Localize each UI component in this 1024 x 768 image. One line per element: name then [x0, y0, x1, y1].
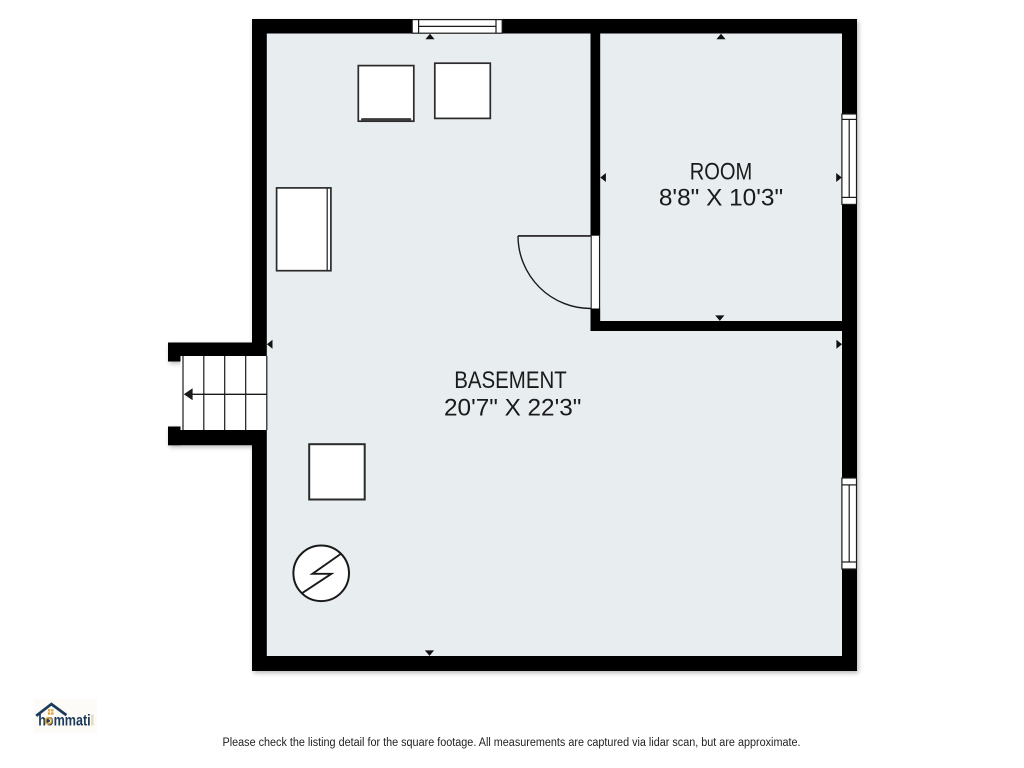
svg-text:Please check the listing detai: Please check the listing detail for the …: [223, 737, 801, 749]
svg-text:8'8" X 10'3": 8'8" X 10'3": [659, 185, 783, 212]
svg-text:20'7" X 22'3": 20'7" X 22'3": [444, 395, 581, 422]
svg-text:ROOM: ROOM: [690, 159, 753, 186]
svg-text:BASEMENT: BASEMENT: [454, 367, 567, 394]
